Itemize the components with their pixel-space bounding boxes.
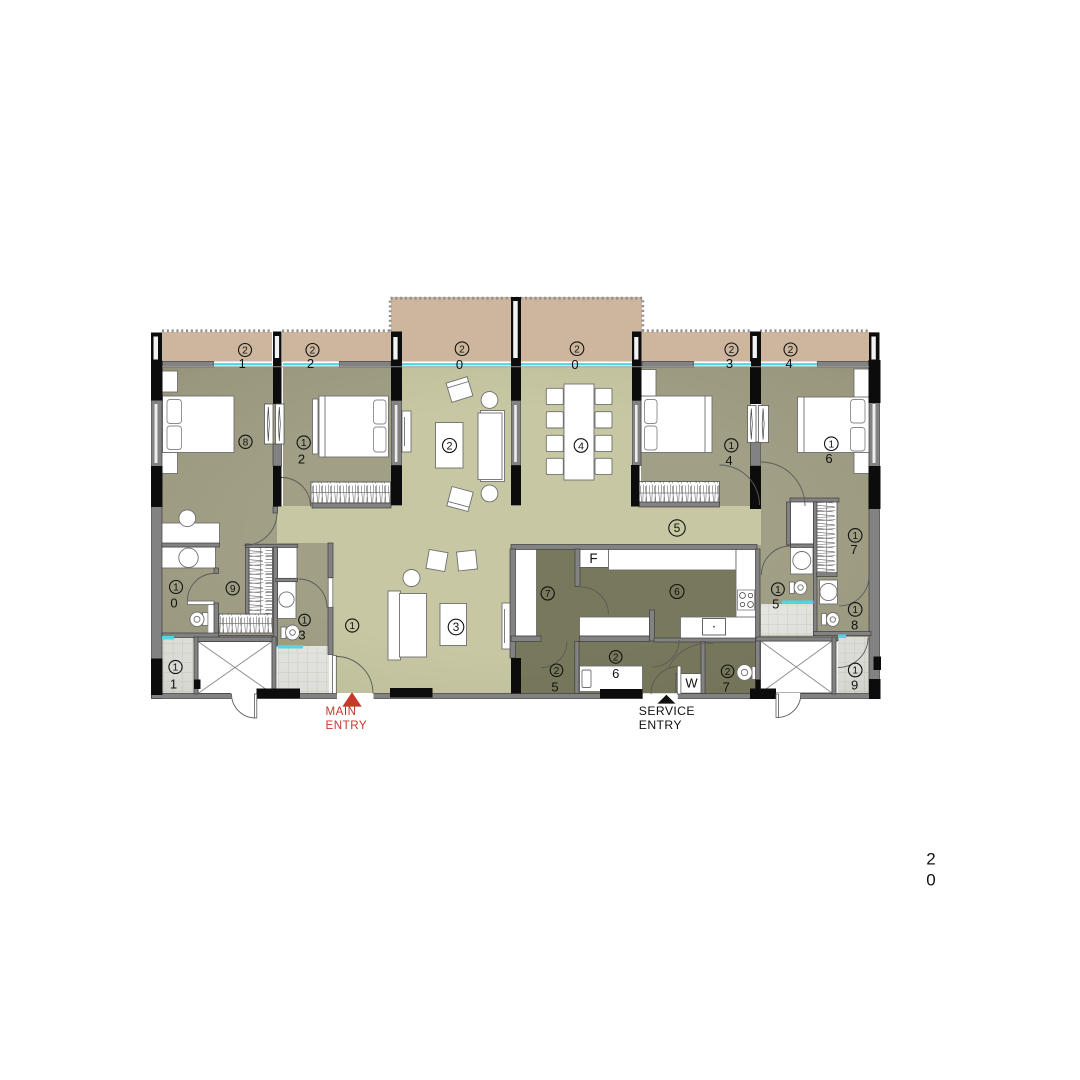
svg-text:0: 0 [456,357,463,372]
svg-text:ENTRY: ENTRY [639,718,682,732]
svg-text:5: 5 [674,521,681,535]
svg-text:0: 0 [170,596,177,611]
svg-text:2: 2 [725,667,731,678]
svg-text:2: 2 [310,346,316,357]
svg-text:3: 3 [726,356,733,371]
svg-text:1: 1 [852,605,858,616]
svg-text:4: 4 [785,356,792,371]
svg-text:MAIN: MAIN [326,705,357,718]
svg-text:2: 2 [446,441,452,453]
svg-text:1: 1 [301,438,307,449]
svg-text:2: 2 [554,666,560,677]
svg-text:1: 1 [852,531,858,542]
svg-text:8: 8 [851,618,858,633]
svg-text:3: 3 [298,628,305,643]
svg-text:1: 1 [828,439,834,450]
svg-text:F: F [589,551,597,566]
svg-text:1: 1 [173,663,179,674]
svg-text:2: 2 [788,345,794,356]
svg-text:4: 4 [725,453,732,468]
svg-text:3: 3 [453,620,460,634]
svg-text:ENTRY: ENTRY [326,719,368,732]
svg-text:1: 1 [170,677,177,692]
svg-text:5: 5 [772,597,779,612]
svg-text:0: 0 [571,357,578,372]
svg-text:7: 7 [850,542,857,557]
svg-text:2: 2 [926,850,935,869]
svg-text:2: 2 [574,344,580,355]
svg-text:1: 1 [349,621,355,632]
svg-text:2: 2 [459,344,465,355]
svg-text:6: 6 [612,666,619,681]
svg-text:9: 9 [230,584,236,595]
svg-text:1: 1 [852,666,858,677]
svg-text:2: 2 [729,345,735,356]
svg-text:6: 6 [674,587,680,598]
svg-text:1: 1 [775,585,781,596]
svg-text:1: 1 [302,615,308,626]
svg-text:9: 9 [851,678,858,693]
svg-text:0: 0 [926,871,935,890]
svg-text:2: 2 [307,356,314,371]
svg-text:1: 1 [239,356,246,371]
svg-text:SERVICE: SERVICE [639,704,695,718]
svg-text:2: 2 [242,346,248,357]
svg-text:5: 5 [551,679,558,694]
svg-text:6: 6 [825,451,832,466]
svg-text:1: 1 [173,583,179,594]
svg-text:7: 7 [545,589,551,600]
svg-text:7: 7 [723,679,730,694]
svg-text:W: W [685,676,698,691]
svg-text:4: 4 [578,441,584,453]
svg-text:1: 1 [728,441,734,452]
svg-text:2: 2 [298,452,305,467]
svg-text:2: 2 [613,653,619,664]
svg-text:8: 8 [243,437,249,448]
